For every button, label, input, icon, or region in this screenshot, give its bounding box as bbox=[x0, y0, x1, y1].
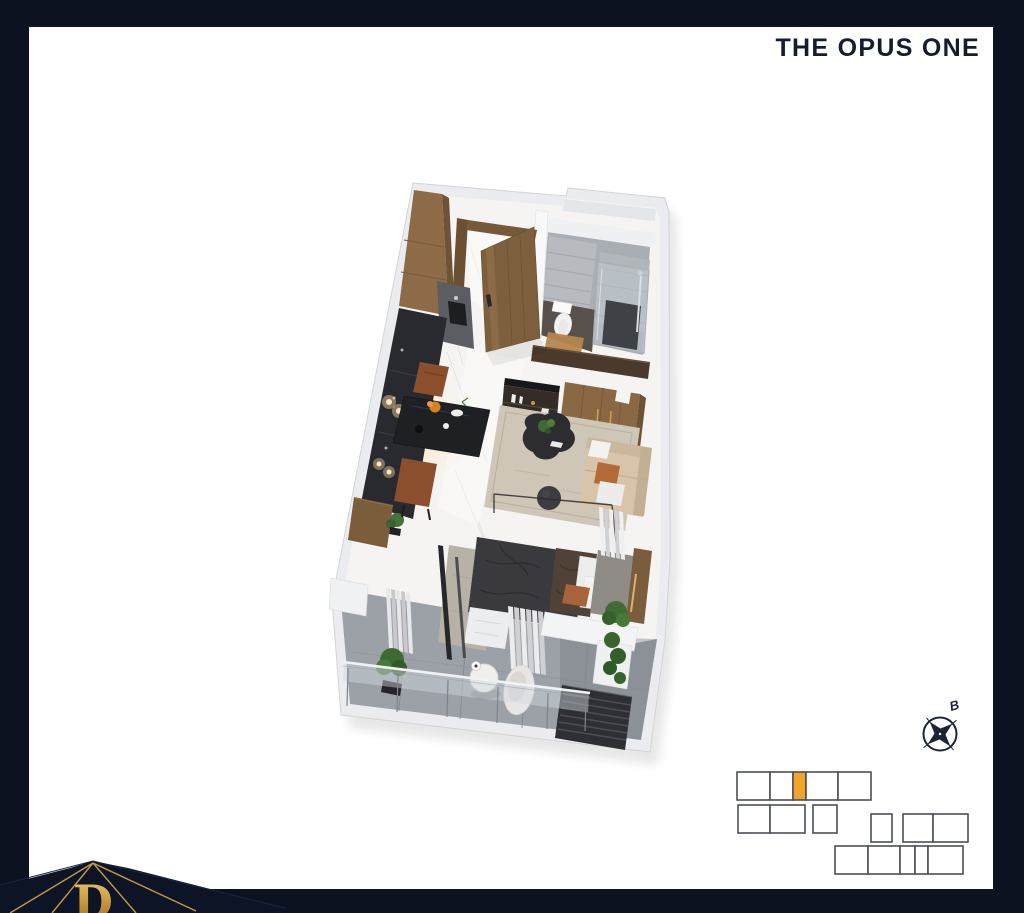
unit-cell bbox=[903, 814, 933, 842]
foot-throw bbox=[464, 607, 511, 649]
balcony-side-wall bbox=[329, 578, 368, 616]
logo-mountain bbox=[0, 861, 285, 913]
unit-cell bbox=[835, 846, 868, 874]
bathroom-tile-wall bbox=[541, 236, 597, 312]
shower bbox=[593, 262, 649, 353]
page-title: THE OPUS ONE bbox=[775, 34, 980, 63]
unit-cell bbox=[928, 846, 963, 874]
unit-cell bbox=[770, 805, 805, 833]
sofa bbox=[580, 437, 652, 517]
unit-cell bbox=[770, 772, 793, 800]
unit-cell bbox=[871, 814, 892, 842]
brochure-page: { "header": { "title": "THE OPUS ONE" },… bbox=[0, 0, 1024, 913]
unit-cell bbox=[915, 846, 928, 874]
floor-plan-render bbox=[300, 160, 700, 780]
logo-letter: D bbox=[73, 875, 113, 913]
accent-pillow bbox=[562, 584, 590, 607]
sofa-throw bbox=[588, 440, 611, 459]
unit-cell-highlighted bbox=[793, 772, 806, 800]
kitchen-sink bbox=[448, 301, 467, 326]
north-label: B bbox=[948, 697, 961, 714]
unit-cell bbox=[900, 846, 915, 874]
unit-cell bbox=[806, 772, 838, 800]
unit-locator bbox=[725, 760, 980, 880]
unit-cell bbox=[813, 805, 837, 833]
unit-cell bbox=[838, 772, 871, 800]
unit-cell bbox=[738, 805, 770, 833]
unit-cell bbox=[868, 846, 900, 874]
developer-logo: D bbox=[0, 830, 285, 913]
unit-cell bbox=[737, 772, 770, 800]
sofa-pillow bbox=[596, 481, 625, 506]
unit-cell bbox=[933, 814, 968, 842]
